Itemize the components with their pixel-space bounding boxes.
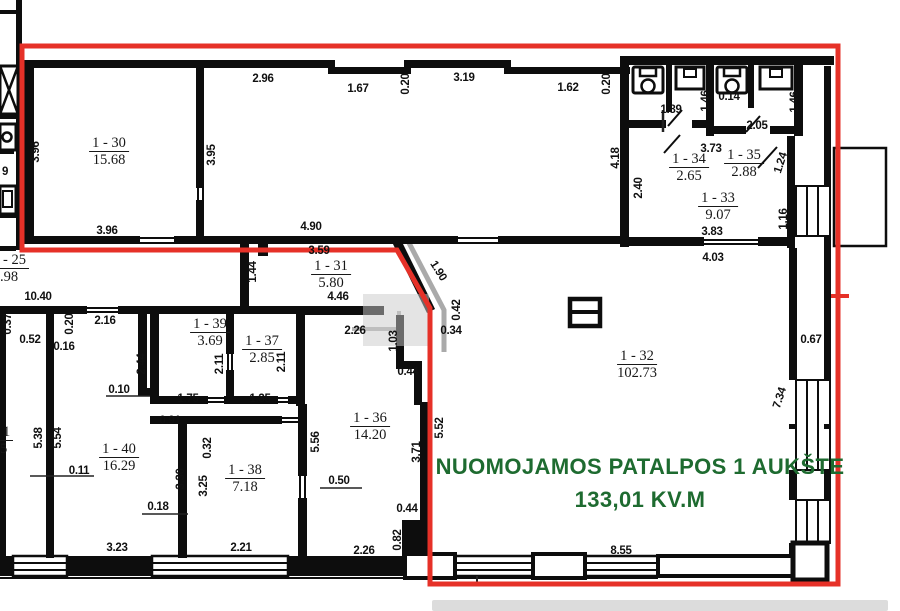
toilet-icon <box>3 133 12 142</box>
rental-title-line2: 133,01 KV.M <box>575 487 706 513</box>
sink-icon <box>3 191 12 207</box>
column-symbol <box>570 299 600 326</box>
floorplan-canvas <box>0 0 900 611</box>
watermark-bar <box>432 600 888 611</box>
toilet-bowl-icon <box>642 80 655 93</box>
faucet-icon <box>770 69 782 77</box>
cistern-icon <box>724 68 740 76</box>
background <box>0 0 900 611</box>
cistern-icon <box>640 68 656 76</box>
floorplan-page: 1 - 3015.681 - 315.801 - 32102.731 - 339… <box>0 0 900 611</box>
toilet-bowl-icon <box>726 80 739 93</box>
rental-title-line1: NUOMOJAMOS PATALPOS 1 AUKŠTE <box>436 454 845 480</box>
exterior-protrusion <box>834 148 886 246</box>
watermark-square <box>363 294 429 346</box>
faucet-icon <box>684 69 696 77</box>
left-edge-fixtures <box>0 66 18 214</box>
